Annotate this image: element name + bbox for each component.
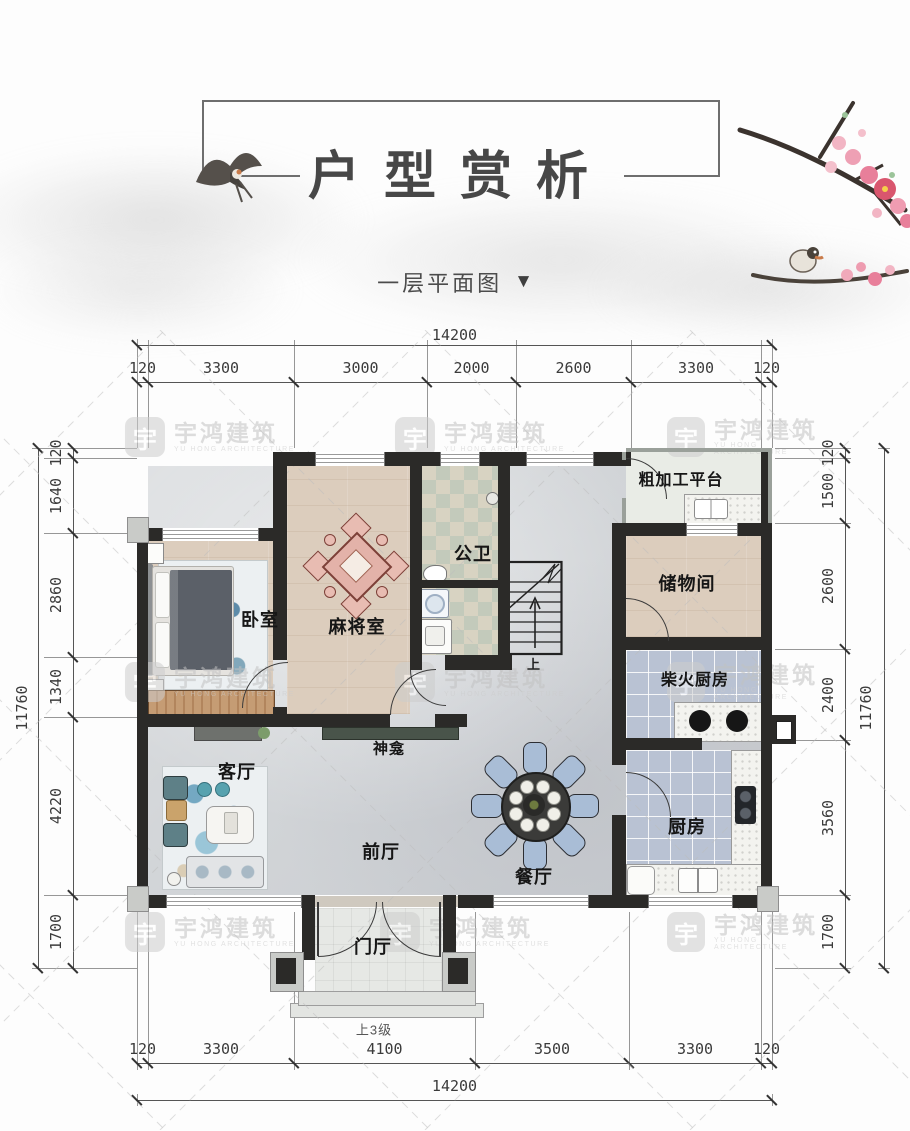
step-upper	[298, 991, 476, 1006]
dim-label: 2600	[819, 568, 837, 604]
dim-label: 120	[819, 439, 837, 466]
dim-label: 1700	[819, 913, 837, 949]
dim-label: 2400	[819, 676, 837, 712]
stove-partition-wall	[626, 738, 702, 750]
platform-top-wall	[626, 448, 772, 452]
dining-chair	[567, 794, 599, 818]
left-outer-wall	[137, 528, 148, 908]
extension-line	[629, 912, 630, 1070]
window-bath-top	[440, 452, 480, 466]
dim-label: 3300	[677, 1040, 713, 1058]
room-label-living: 客厅	[218, 758, 256, 784]
dining-plate	[536, 780, 550, 794]
extension-line	[148, 340, 149, 448]
brand-watermark: 宇宇鸿建筑YU HONG ARCHITECTURE	[125, 417, 295, 457]
dim-label: 120	[129, 359, 156, 377]
page-title: 户型赏析	[225, 134, 695, 209]
dim-label: 4220	[47, 788, 65, 824]
chimney-flue	[776, 721, 792, 740]
dim-label: 120	[47, 439, 65, 466]
mahjong-stool-4	[376, 586, 388, 598]
dimension-line	[137, 1100, 772, 1101]
bath-left-wall	[410, 452, 422, 670]
dim-label: 2000	[453, 359, 489, 377]
pilaster-bottom-left	[127, 886, 149, 912]
extension-line	[772, 340, 773, 448]
lazy-susan	[523, 794, 545, 816]
dim-label: 3300	[678, 359, 714, 377]
shrine-wall-b	[435, 714, 467, 727]
pilaster-bottom-right	[757, 886, 779, 912]
extension-line	[516, 340, 517, 448]
bottom-wall-c	[458, 895, 493, 908]
dim-label: 1640	[47, 477, 65, 513]
wood-stove-counter	[674, 702, 763, 742]
extension-line	[427, 340, 428, 448]
wood-stove-burner-1	[689, 710, 711, 732]
kitchen-sink	[678, 868, 718, 893]
hall-kitchen-wall-b	[612, 815, 626, 895]
plum-blossom-branch	[735, 85, 910, 315]
wood-stove-burner-2	[726, 710, 748, 732]
bath-partition-wall	[410, 580, 498, 588]
extension-line	[775, 523, 851, 524]
window-bedroom-top	[162, 528, 259, 541]
brand-watermark: 宇宇鸿建筑YU HONG ARCHITECTURE	[667, 912, 829, 952]
platform-west-wall-b	[622, 498, 626, 523]
armchair-1	[163, 776, 188, 800]
room-label-storage: 储物间	[659, 570, 716, 596]
platform-sink	[694, 499, 728, 519]
room-label-front-hall: 前厅	[362, 838, 400, 864]
dining-chair	[471, 794, 503, 818]
pouf-1	[197, 782, 212, 797]
page-subtitle: 一层平面图	[377, 266, 502, 298]
room-label-platform: 粗加工平台	[638, 466, 723, 490]
dimension-line	[38, 448, 39, 968]
dim-label: 1700	[47, 913, 65, 949]
extension-line	[775, 895, 851, 896]
tv-console	[194, 726, 262, 741]
room-label-mahjong: 麻将室	[329, 613, 386, 639]
floor-lamp	[167, 872, 181, 886]
armchair-2	[163, 823, 188, 847]
dim-label: 3560	[819, 799, 837, 835]
dim-label: 1340	[47, 669, 65, 705]
dining-plate	[520, 780, 534, 794]
stair-up-label: 上	[527, 654, 540, 673]
window-storage-top	[686, 523, 738, 536]
room-label-dining: 餐厅	[515, 863, 553, 889]
side-table	[166, 800, 187, 821]
bedroom-mahjong-wall-b	[273, 707, 287, 727]
dimension-line	[137, 345, 772, 346]
mahjong-stool-2	[376, 534, 388, 546]
mountain-wash-4	[0, 235, 300, 345]
dim-label: 4100	[366, 1040, 402, 1058]
brand-logo-icon: 宇	[125, 417, 165, 457]
extension-line	[44, 717, 137, 718]
extension-line	[775, 448, 851, 449]
bath-right-wall	[498, 452, 510, 670]
extension-line	[44, 533, 137, 534]
extension-line	[44, 895, 137, 896]
stairs	[505, 556, 563, 668]
extension-line	[775, 968, 851, 969]
brand-name: 宇鸿建筑	[444, 421, 565, 445]
vanity-sink	[425, 626, 445, 646]
subtitle-row: 一层平面图 ▼	[320, 266, 590, 298]
dim-label: 14200	[432, 1077, 477, 1095]
bed-pillow-2	[155, 622, 170, 668]
coffee-table-tray	[224, 812, 238, 834]
room-label-bedroom: 卧室	[241, 606, 279, 632]
title-frame-top	[202, 100, 720, 102]
dim-label: 120	[753, 1040, 780, 1058]
mahjong-stool-3	[324, 586, 336, 598]
brand-name: 宇鸿建筑	[174, 421, 295, 445]
sofa	[186, 856, 264, 888]
hall-kitchen-wall-a	[612, 523, 626, 765]
brand-name: 宇鸿建筑	[174, 916, 295, 940]
extension-line	[44, 657, 137, 658]
dim-label: 120	[129, 1040, 156, 1058]
brand-watermark: 宇宇鸿建筑YU HONG ARCHITECTURE	[395, 417, 565, 457]
room-label-entry: 门厅	[354, 933, 392, 959]
brand-logo-icon: 宇	[395, 417, 435, 457]
dimension-line	[845, 448, 846, 968]
shrine-wall-a	[137, 714, 390, 727]
porch-left-wall	[302, 895, 315, 960]
extension-line	[44, 968, 137, 969]
dimension-line	[137, 1063, 772, 1064]
window-stairhall-top	[526, 452, 594, 466]
dim-label: 3000	[342, 359, 378, 377]
flying-bird-icon	[190, 138, 272, 208]
entry-steps-note: 上3级	[356, 1020, 392, 1039]
pouf-2	[215, 782, 230, 797]
brand-logo-icon: 宇	[667, 912, 705, 952]
extension-line	[775, 458, 851, 459]
entry-column-right	[448, 958, 468, 984]
dim-label: 2600	[555, 359, 591, 377]
pilaster-top-left	[127, 517, 149, 543]
dim-label: 14200	[432, 326, 477, 344]
mahjong-stool-1	[324, 534, 336, 546]
dining-plate	[509, 807, 523, 821]
bed-pillow-1	[155, 572, 170, 618]
window-kitchen-bottom	[648, 895, 733, 908]
dim-label: 11760	[13, 685, 31, 730]
dim-label: 120	[753, 359, 780, 377]
washer-drum	[425, 594, 445, 614]
window-dining-bottom	[493, 895, 589, 908]
room-label-wood-kitchen: 柴火厨房	[661, 666, 729, 690]
brand-logo-icon: 宇	[125, 912, 165, 952]
dim-label: 11760	[857, 685, 875, 730]
dim-label: 1500	[819, 472, 837, 508]
title-frame-right	[718, 100, 720, 177]
dim-label: 3300	[203, 359, 239, 377]
dining-chair	[523, 742, 547, 774]
dimension-line	[73, 448, 74, 968]
subtitle-arrow-icon: ▼	[514, 271, 533, 293]
extension-line	[775, 649, 851, 650]
bed-duvet	[170, 570, 232, 670]
extension-line	[137, 340, 138, 448]
room-label-kitchen: 厨房	[668, 813, 706, 839]
poster-canvas: 户型赏析 一层平面图 ▼ 上 上3级	[0, 0, 910, 1131]
dim-label: 3500	[534, 1040, 570, 1058]
brand-name-en: YU HONG ARCHITECTURE	[174, 941, 295, 948]
room-label-bath: 公卫	[454, 540, 492, 566]
porch-right-wall	[443, 895, 456, 960]
dim-label: 2860	[47, 577, 65, 613]
tv-plant	[258, 727, 270, 739]
window-living-bottom	[166, 895, 302, 908]
bottom-wall-d	[587, 895, 648, 908]
fridge	[627, 866, 655, 895]
extension-line	[761, 340, 762, 448]
gas-hob	[735, 786, 756, 824]
brand-watermark: 宇宇鸿建筑YU HONG ARCHITECTURE	[125, 912, 295, 952]
dim-label: 3300	[203, 1040, 239, 1058]
room-label-shrine: 神龛	[373, 738, 405, 759]
dimension-line	[137, 382, 772, 383]
window-mahjong-top	[315, 452, 385, 466]
extension-line	[294, 340, 295, 448]
platform-right-wall	[768, 448, 772, 523]
extension-line	[631, 340, 632, 448]
dining-plate	[509, 791, 523, 805]
entry-column-left	[276, 958, 296, 984]
dimension-line	[884, 448, 885, 968]
